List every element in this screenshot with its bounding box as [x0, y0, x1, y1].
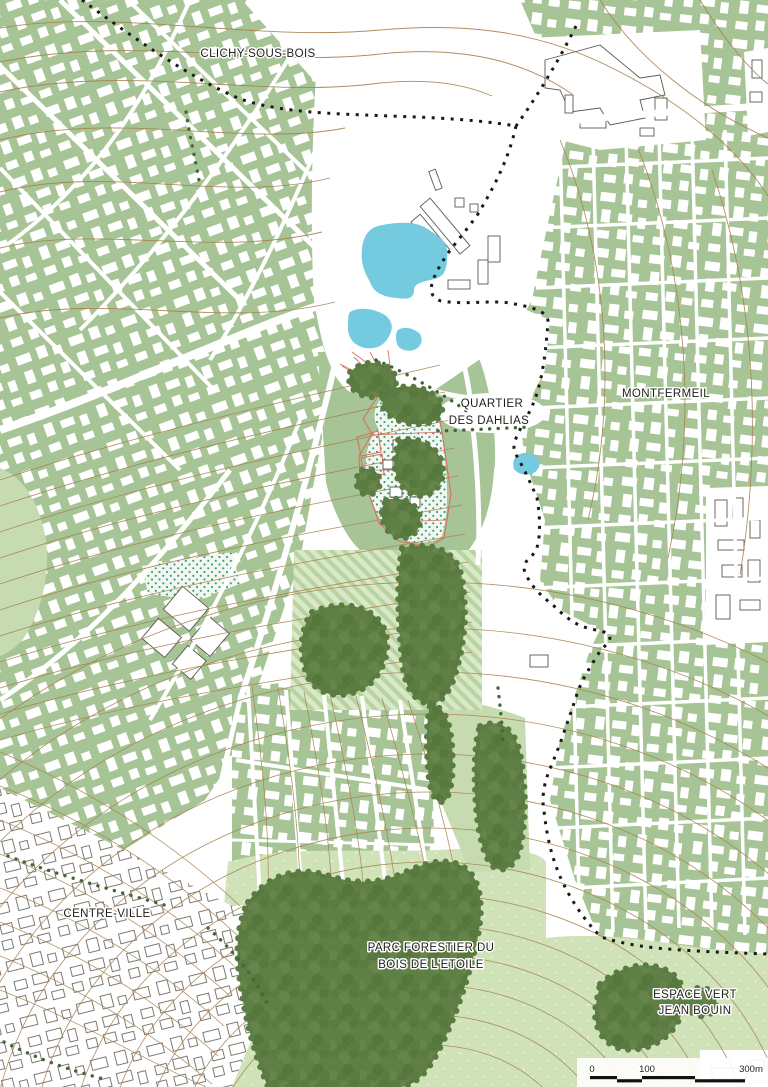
label-quartier-des-dahlias-line1: QUARTIER — [461, 398, 523, 410]
label-espace-vert-line2: JEAN BOUIN — [658, 1005, 731, 1017]
scale-tick-0: 0 — [589, 1064, 594, 1075]
forest-site-west — [356, 469, 380, 495]
scale-bar: 0 100 300m — [577, 1058, 768, 1087]
map-canvas: CLICHY-SOUS-BOIS MONTFERMEIL QUARTIER DE… — [0, 0, 768, 1087]
forest-strip-below-site — [398, 546, 465, 704]
scale-tick-300m: 300m — [739, 1064, 763, 1075]
scale-tick-100: 100 — [639, 1064, 655, 1075]
label-clichy-sous-bois: CLICHY-SOUS-BOIS — [200, 48, 315, 60]
forest-site-mid — [394, 439, 443, 496]
label-espace-vert-line1: ESPACE VERT — [653, 989, 737, 1001]
scale-bar-segment — [590, 1076, 617, 1079]
forest-strip-east — [475, 723, 525, 869]
label-parc-forestier-line2: BOIS DE L'ETOILE — [378, 959, 484, 971]
label-quartier-des-dahlias-line2: DES DAHLIAS — [449, 415, 529, 427]
label-centre-ville: CENTRE-VILLE — [63, 908, 150, 920]
forest-site-south — [382, 499, 421, 538]
scale-bar-segment — [617, 1079, 642, 1082]
label-montfermeil: MONTFERMEIL — [622, 388, 710, 400]
label-parc-forestier-line1: PARC FORESTIER DU — [368, 942, 495, 954]
scale-bar-segment — [642, 1076, 695, 1079]
scale-bar-segment — [695, 1079, 745, 1082]
